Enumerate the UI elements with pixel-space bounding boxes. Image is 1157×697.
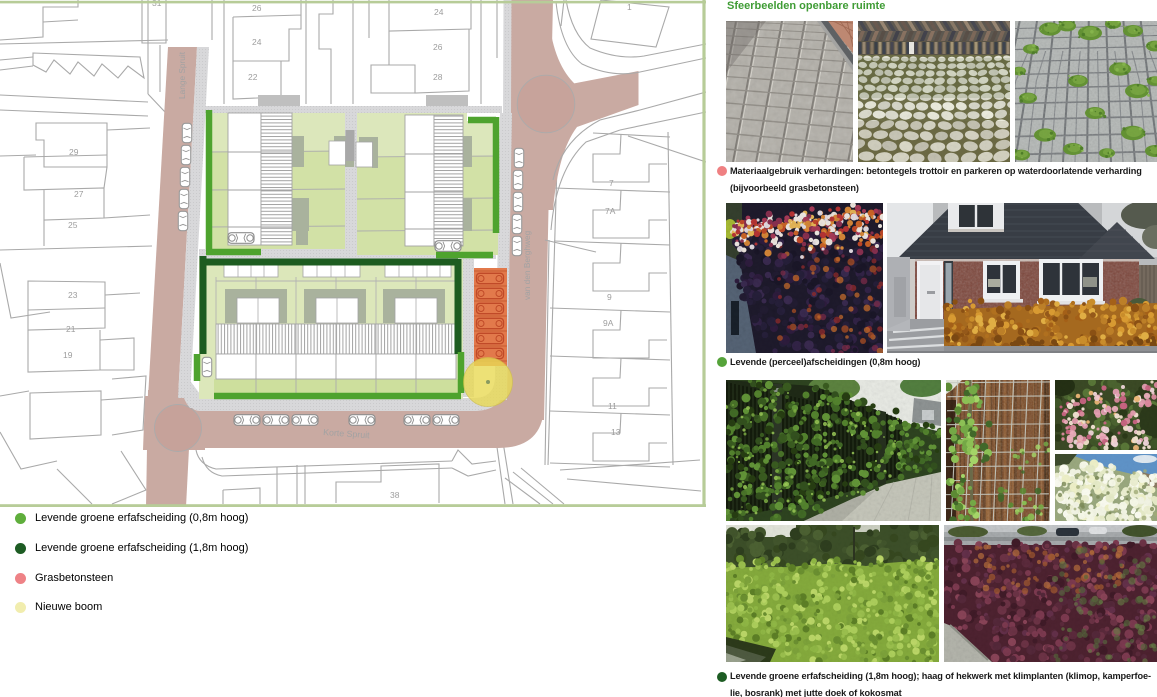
- svg-text:7: 7: [609, 178, 614, 188]
- svg-text:11: 11: [608, 401, 617, 411]
- svg-text:van den Berghweg: van den Berghweg: [522, 230, 532, 300]
- svg-text:13: 13: [611, 427, 621, 437]
- svg-text:23: 23: [68, 290, 78, 300]
- svg-text:21: 21: [66, 324, 76, 334]
- svg-text:9: 9: [607, 292, 612, 302]
- svg-text:28: 28: [433, 72, 443, 82]
- svg-text:29: 29: [69, 147, 79, 157]
- svg-text:27: 27: [74, 189, 84, 199]
- svg-text:9A: 9A: [603, 318, 614, 328]
- svg-text:Lange Spruit: Lange Spruit: [177, 51, 187, 99]
- svg-text:7A: 7A: [605, 206, 616, 216]
- svg-text:26: 26: [433, 42, 443, 52]
- svg-text:38: 38: [390, 490, 400, 500]
- svg-text:24: 24: [434, 7, 444, 17]
- svg-text:22: 22: [248, 72, 258, 82]
- svg-text:26: 26: [252, 3, 262, 13]
- svg-text:24: 24: [252, 37, 262, 47]
- svg-text:1: 1: [627, 2, 632, 12]
- svg-text:25: 25: [68, 220, 78, 230]
- svg-text:19: 19: [63, 350, 73, 360]
